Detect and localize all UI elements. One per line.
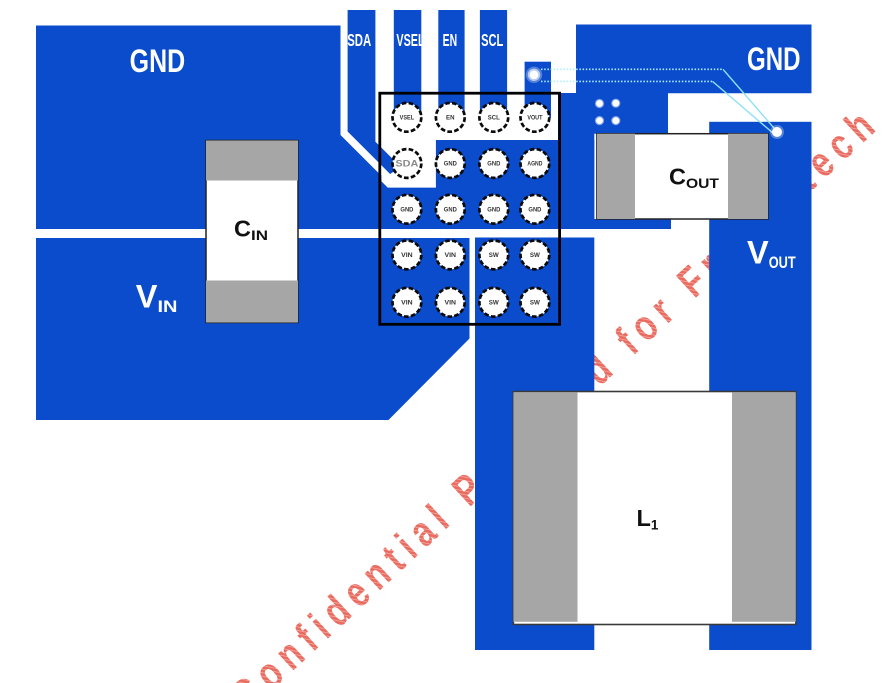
svg-text:SW: SW [530,299,540,306]
svg-text:GND: GND [528,206,542,213]
svg-text:VIN: VIN [401,299,413,306]
svg-text:SW: SW [530,252,540,259]
svg-text:VOUT: VOUT [527,115,542,122]
svg-text:GND: GND [444,161,458,168]
svg-text:SW: SW [489,252,499,259]
svg-text:GND: GND [130,43,186,79]
svg-text:VSEL: VSEL [396,30,424,50]
svg-text:VIN: VIN [401,252,413,259]
svg-text:SCL: SCL [481,30,503,50]
svg-text:GND: GND [747,41,801,77]
svg-text:GND: GND [487,161,501,168]
svg-text:EN: EN [446,115,455,122]
svg-text:GND: GND [444,206,458,213]
svg-text:EN: EN [443,30,458,50]
svg-text:VIN: VIN [445,252,457,259]
svg-text:VIN: VIN [445,299,457,306]
svg-text:SW: SW [489,299,499,306]
svg-text:SDA: SDA [395,158,419,168]
svg-text:AGND: AGND [527,161,542,168]
svg-text:SCL: SCL [488,115,500,122]
svg-text:VSEL: VSEL [400,115,415,122]
svg-text:SDA: SDA [347,30,371,50]
svg-text:GND: GND [400,206,414,213]
svg-text:GND: GND [487,206,501,213]
